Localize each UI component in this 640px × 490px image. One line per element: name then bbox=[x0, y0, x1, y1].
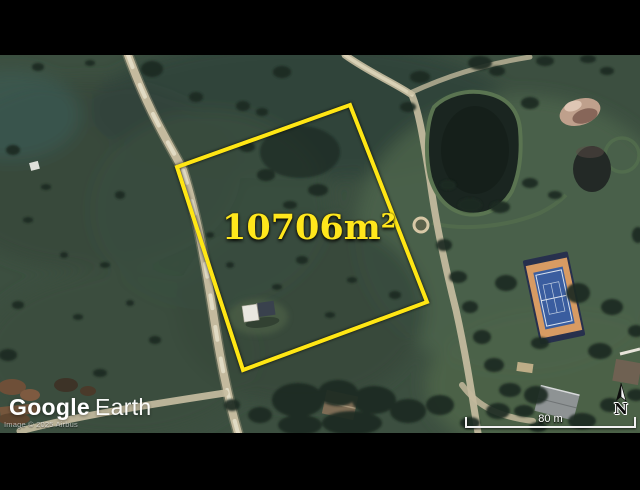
letterbox-top bbox=[0, 0, 640, 55]
north-label: N bbox=[607, 403, 635, 416]
google-earth-screenshot: 10706m² GoogleEarth Image © 2025 Airbus … bbox=[0, 0, 640, 490]
small-pond bbox=[573, 146, 611, 192]
google-logo-text: Google bbox=[9, 394, 90, 420]
map-canvas[interactable]: 10706m² GoogleEarth Image © 2025 Airbus … bbox=[0, 55, 640, 433]
earth-logo-text: Earth bbox=[95, 394, 151, 420]
pond bbox=[427, 92, 521, 215]
attribution-text: Image © 2025 Airbus bbox=[4, 420, 78, 429]
water-tank bbox=[414, 218, 428, 232]
google-earth-logo: GoogleEarth bbox=[9, 394, 152, 421]
north-indicator: N bbox=[607, 383, 635, 421]
letterbox-bottom bbox=[0, 433, 640, 490]
parcel-area-label: 10706m² bbox=[222, 207, 392, 248]
